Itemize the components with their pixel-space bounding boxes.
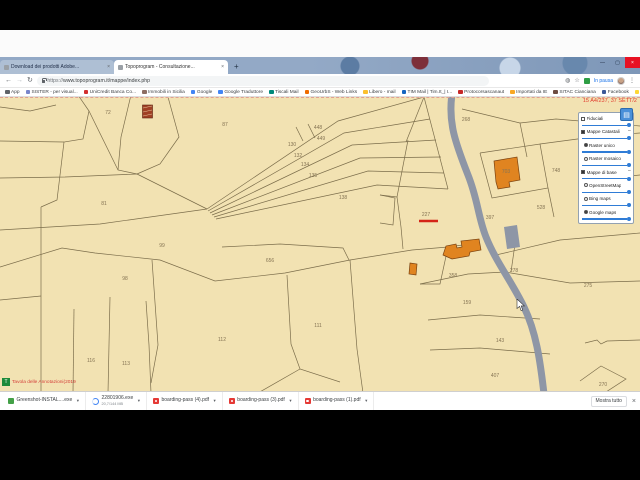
expand-collapse-icon[interactable]: − <box>628 129 631 135</box>
parcel-number: 159 <box>463 300 471 306</box>
parcel-number: 278 <box>510 268 518 274</box>
slider-knob[interactable] <box>627 136 631 140</box>
expand-collapse-icon[interactable]: − <box>628 169 631 175</box>
toolbar-right-icons: ◍ ☆ In pausa ⋮ <box>565 77 635 85</box>
checkbox[interactable] <box>581 130 585 134</box>
slider-track <box>582 125 627 126</box>
slider-knob[interactable] <box>627 217 631 221</box>
parcel-number: 407 <box>491 373 499 379</box>
parcel-number: 528 <box>537 205 545 211</box>
opacity-slider[interactable] <box>581 135 631 141</box>
slider-track <box>582 138 627 139</box>
bookmark-label: Facebook <box>608 90 629 95</box>
radio-button[interactable] <box>584 210 588 214</box>
pdf-file-icon <box>153 398 159 404</box>
slider-knob[interactable] <box>627 123 631 127</box>
bookmark-favicon <box>84 90 89 95</box>
opacity-slider[interactable] <box>581 202 631 208</box>
bookmark-item[interactable]: Immobili in Sicilia <box>142 90 185 95</box>
parcel-number: 748 <box>552 168 560 174</box>
bookmark-label: Google Traduttore <box>224 90 263 95</box>
green-extension-icon[interactable] <box>584 78 590 84</box>
bookmark-favicon <box>363 90 368 95</box>
download-menu-caret-icon[interactable]: ▾ <box>289 398 291 404</box>
parcel-number: 270 <box>599 382 607 388</box>
download-menu-caret-icon[interactable]: ▾ <box>365 398 367 404</box>
bookmark-favicon <box>142 90 147 95</box>
parcel-number: 111 <box>314 323 322 329</box>
bookmark-star-icon[interactable]: ☆ <box>574 78 579 84</box>
opacity-slider[interactable] <box>581 149 631 155</box>
page-favicon <box>118 65 123 70</box>
bookmark-favicon <box>602 90 607 95</box>
layer-row[interactable]: Raster mosaico <box>581 155 631 162</box>
parcel-number: 448 <box>314 125 322 131</box>
window-controls: — ▢ × <box>595 57 640 68</box>
layer-row[interactable]: Mappe di base− <box>581 169 631 176</box>
bookmark-favicon <box>26 90 31 95</box>
secure-lock-icon <box>42 80 46 83</box>
bookmark-label: App <box>11 90 20 95</box>
browser-theme-image <box>310 57 640 74</box>
bookmark-favicon <box>191 90 196 95</box>
checkbox[interactable] <box>581 170 585 174</box>
bookmark-item[interactable]: UniCredit Banca Co... <box>84 90 136 95</box>
download-filename: boarding-pass (4).pdf <box>162 398 210 404</box>
bookmark-favicon <box>269 90 274 95</box>
bookmark-favicon <box>5 90 10 95</box>
bookmark-label: Google <box>197 90 212 95</box>
layer-label: Google maps <box>589 210 616 215</box>
parcel-number: 703 <box>502 169 510 175</box>
layer-label: Raster unico <box>589 143 615 148</box>
parcel-number: 138 <box>339 195 347 201</box>
page-favicon <box>4 65 9 70</box>
download-filename: Greenshot-INSTAL....exe <box>17 398 73 404</box>
slider-track <box>582 165 627 166</box>
opacity-slider[interactable] <box>581 189 631 195</box>
layer-row[interactable]: Bing maps <box>581 195 631 202</box>
layers-toggle-button[interactable]: ▤ <box>620 108 633 121</box>
layer-row[interactable]: Mappe Catastali− <box>581 128 631 135</box>
bookmark-favicon <box>458 90 463 95</box>
bookmark-item[interactable]: Libero - mail <box>363 90 395 95</box>
tab-adobe-downloads[interactable]: Download dei prodotti Adobe... × <box>0 60 114 74</box>
layer-label: Fiduciali <box>587 116 604 121</box>
layers-panel: Fiduciali+Mappe Catastali−Raster unicoRa… <box>578 112 634 224</box>
parcel-number: 99 <box>159 243 165 249</box>
parcel-number: 656 <box>266 258 274 264</box>
download-item[interactable]: boarding-pass (1).pdf▾ <box>299 392 375 410</box>
downloads-bar: Greenshot-INSTAL....exe▾22801906.exe20,7… <box>0 391 640 410</box>
radio-button[interactable] <box>584 143 588 147</box>
layer-label: Bing maps <box>589 196 611 201</box>
slider-track <box>582 218 627 219</box>
radio-button[interactable] <box>584 157 588 161</box>
forward-icon[interactable]: → <box>16 77 23 84</box>
bookmark-item[interactable]: TIM Mail | Tim.It_| I... <box>402 90 453 95</box>
browser-menu-icon[interactable]: ⋮ <box>629 78 635 84</box>
tab-topoprogram[interactable]: Topoprogram - Consultazione... × <box>114 60 228 74</box>
parcel-number: 87 <box>222 122 228 128</box>
hatched-building <box>143 105 153 118</box>
slider-knob[interactable] <box>627 163 631 167</box>
download-progress-text: 20,7/144 MB <box>102 402 134 406</box>
building-small <box>409 263 417 275</box>
download-item[interactable]: 22801906.exe20,7/144 MB▾ <box>86 392 147 410</box>
parcel-number: 227 <box>422 212 430 218</box>
radio-button[interactable] <box>584 197 588 201</box>
parcel-number: 112 <box>218 337 226 343</box>
show-all-downloads-button[interactable]: Mostra tutto <box>591 396 627 407</box>
tab-strip: Download dei prodotti Adobe... × Topopro… <box>0 57 640 74</box>
pdf-file-icon <box>229 398 235 404</box>
captured-screen: Download dei prodotti Adobe... × Topopro… <box>0 30 640 410</box>
bookmark-label: GeoUrbS - Web Links <box>311 90 358 95</box>
pdf-file-icon <box>305 398 311 404</box>
bookmark-favicon <box>510 90 515 95</box>
parcel-number: 130 <box>288 142 296 148</box>
map-annotation-text: Tavola delle Annotazioni(2019 <box>12 380 76 385</box>
maximize-button[interactable]: ▢ <box>610 57 625 68</box>
slider-track <box>582 192 627 193</box>
downloads-bar-right: Mostra tutto × <box>591 396 640 407</box>
opacity-slider[interactable] <box>581 216 631 222</box>
opacity-slider[interactable] <box>581 122 631 128</box>
download-item[interactable]: Greenshot-INSTAL....exe▾ <box>2 392 86 410</box>
sync-paused-chip[interactable]: In pausa <box>594 78 613 84</box>
url-scheme: https:// <box>47 78 63 84</box>
slider-track <box>582 205 627 206</box>
parcel-number: 268 <box>462 117 470 123</box>
tab-title: Topoprogram - Consultazione... <box>125 64 195 70</box>
parcel-number: 81 <box>101 201 107 207</box>
parcel-number: 275 <box>584 283 592 289</box>
slider-knob[interactable] <box>627 150 631 154</box>
parcel-number: 72 <box>105 110 111 116</box>
bookmark-item[interactable]: Google Traduttore <box>218 90 263 95</box>
bookmark-label: Tiscali Mail <box>275 90 299 95</box>
download-filename: boarding-pass (3).pdf <box>237 398 285 404</box>
parcel-number: 132 <box>294 153 302 159</box>
slider-track <box>582 151 627 152</box>
layer-row[interactable]: Raster unico <box>581 142 631 149</box>
bookmark-label: Immobili in Sicilia <box>148 90 185 95</box>
new-tab-button[interactable]: + <box>234 62 239 72</box>
bookmark-label: Libero - mail <box>369 90 395 95</box>
close-downloads-bar-icon[interactable]: × <box>632 398 636 405</box>
parcel-number: 134 <box>301 162 309 168</box>
parcel-number: 143 <box>496 338 504 344</box>
parcel-number: 397 <box>486 215 494 221</box>
layer-label: Raster mosaico <box>589 156 621 161</box>
slider-knob[interactable] <box>627 190 631 194</box>
extension-icon[interactable]: ◍ <box>565 78 570 84</box>
bookmark-label: TIM Mail | Tim.It_| I... <box>408 90 453 95</box>
download-menu-caret-icon[interactable]: ▾ <box>138 398 140 404</box>
desktop-gap <box>0 30 640 57</box>
bookmark-item[interactable]: SITAC Cianciana <box>553 90 595 95</box>
download-item[interactable]: boarding-pass (3).pdf▾ <box>223 392 299 410</box>
parcel-number: 449 <box>317 136 325 142</box>
opacity-slider[interactable] <box>581 162 631 168</box>
slider-knob[interactable] <box>627 177 631 181</box>
bookmark-favicon <box>635 90 640 95</box>
bookmark-item[interactable]: Video Meteo Oggi -... <box>635 90 640 95</box>
page-url: https://www.topoprogram.it/mappe/index.p… <box>47 78 150 84</box>
bookmarks-bar: AppSISTER - per visual...UniCredit Banca… <box>0 88 640 97</box>
bookmark-label: Protocorsascanaut <box>464 90 504 95</box>
slider-knob[interactable] <box>627 203 631 207</box>
tab-close-icon[interactable]: × <box>221 65 224 70</box>
slider-track <box>582 178 627 179</box>
download-menu-caret-icon[interactable]: ▾ <box>77 398 79 404</box>
bookmark-favicon <box>218 90 223 95</box>
checkbox[interactable] <box>581 117 585 121</box>
radio-button[interactable] <box>584 183 588 187</box>
address-bar[interactable]: https://www.topoprogram.it/mappe/index.p… <box>37 76 489 86</box>
bookmark-label: SISTER - per visual... <box>32 90 78 95</box>
bookmark-item[interactable]: Facebook <box>602 90 629 95</box>
download-progress-icon <box>92 398 99 405</box>
download-item[interactable]: boarding-pass (4).pdf▾ <box>147 392 223 410</box>
bookmark-favicon <box>305 90 310 95</box>
bookmark-item[interactable]: Protocorsascanaut <box>458 90 504 95</box>
parcel-number: 135 <box>309 173 317 179</box>
parcel-number: 113 <box>122 361 130 367</box>
map-viewport[interactable]: 7287448449130132134135138268812273977485… <box>0 97 640 391</box>
layer-row[interactable]: Google maps <box>581 209 631 216</box>
url-host-path: www.topoprogram.it/mappe/index.php <box>63 78 150 84</box>
topoprogram-logo: T <box>2 378 10 386</box>
minimize-button[interactable]: — <box>595 57 610 68</box>
close-button[interactable]: × <box>625 57 640 68</box>
opacity-slider[interactable] <box>581 176 631 182</box>
bookmark-item[interactable]: Google <box>191 90 212 95</box>
bookmark-label: UniCredit Banca Co... <box>90 90 136 95</box>
map-top-dashed-line <box>0 97 640 98</box>
bookmark-label: SITAC Cianciana <box>559 90 595 95</box>
bookmark-label: Importati da IE <box>516 90 547 95</box>
bookmark-item[interactable]: Importati da IE <box>510 90 547 95</box>
layer-label: Mappe Catastali <box>587 129 620 134</box>
download-filename: boarding-pass (1).pdf <box>313 398 361 404</box>
tab-close-icon[interactable]: × <box>107 65 110 70</box>
bookmark-item[interactable]: GeoUrbS - Web Links <box>305 90 358 95</box>
mouse-cursor <box>516 299 526 312</box>
profile-avatar[interactable] <box>617 77 625 85</box>
bookmark-favicon <box>553 90 558 95</box>
back-icon[interactable]: ← <box>5 77 12 84</box>
layer-row[interactable]: OpenStreetMap <box>581 182 631 189</box>
reload-icon[interactable]: ↻ <box>27 77 33 84</box>
letterboxed-screenshot: Download dei prodotti Adobe... × Topopro… <box>0 0 640 480</box>
parcel-number: 116 <box>87 358 95 364</box>
layer-label: Mappe di base <box>587 170 617 175</box>
bookmark-item[interactable]: Tiscali Mail <box>269 90 299 95</box>
parcel-number: 358 <box>449 273 457 279</box>
bookmark-item[interactable]: App <box>5 90 20 95</box>
tab-title: Download dei prodotti Adobe... <box>11 64 79 70</box>
download-menu-caret-icon[interactable]: ▾ <box>214 398 216 404</box>
layer-label: OpenStreetMap <box>589 183 621 188</box>
bookmark-favicon <box>402 90 407 95</box>
browser-toolbar: ← → ↻ https://www.topoprogram.it/mappe/i… <box>0 74 640 88</box>
map-coordinates-readout: 15 A4/237, 37 SETT/2 <box>583 98 637 104</box>
greenshot-file-icon <box>8 398 14 404</box>
parcel-number: 98 <box>122 276 128 282</box>
bookmark-item[interactable]: SISTER - per visual... <box>26 90 78 95</box>
